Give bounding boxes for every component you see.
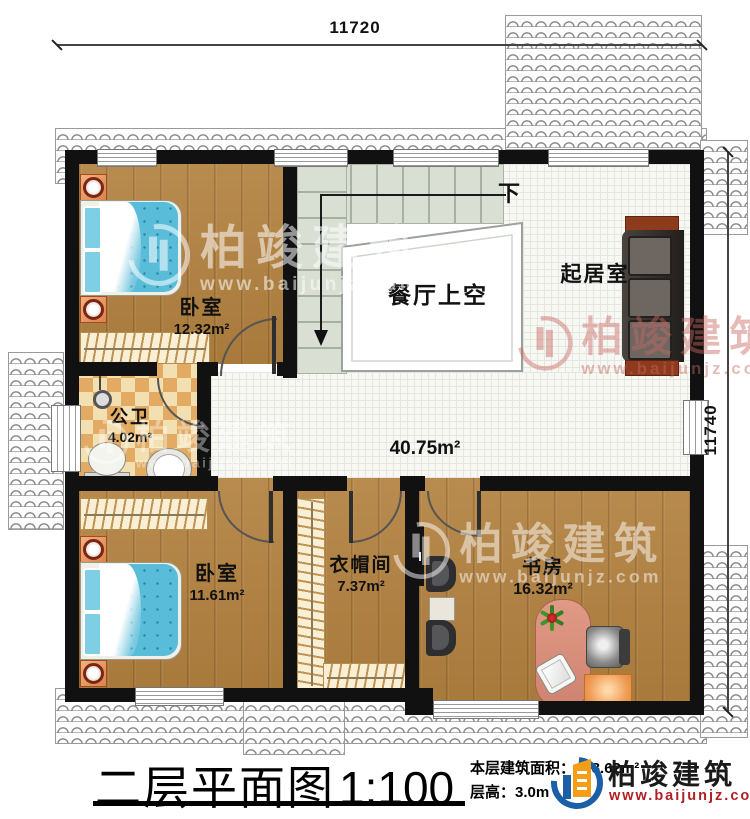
watermark-logo-bar [422, 536, 429, 565]
roof-right-upper [700, 140, 748, 235]
watermark-logo-icon [507, 305, 583, 381]
window [135, 687, 224, 706]
wall-segment [65, 470, 79, 702]
door-leaf [269, 491, 273, 543]
wall-segment [155, 150, 274, 164]
wall-segment [222, 688, 406, 702]
pillow [83, 250, 102, 294]
plant-flower [547, 613, 557, 623]
watermark: 柏竣建筑 www.baijunjz.com [518, 316, 750, 379]
room-area: 11.61m² [162, 587, 272, 606]
title-underline [93, 801, 465, 806]
dimension-line-right [727, 152, 729, 712]
plant-icon [539, 605, 565, 631]
dimension-line-top [57, 44, 702, 46]
watermark: 柏竣建筑 www.baijunjz.com [84, 420, 297, 472]
watermark-logo-bar [99, 429, 105, 448]
window [548, 149, 649, 167]
wardrobe-rod [84, 348, 206, 350]
bedroom-top-label: 卧室 12.32m² [144, 296, 259, 340]
wall-segment [65, 150, 79, 405]
side-table [429, 597, 455, 621]
wardrobe-rod [327, 677, 403, 679]
stair-down-label: 下 [498, 176, 520, 208]
watermark-url: www.baijunjz.com [581, 360, 750, 379]
wall-segment [690, 452, 704, 715]
armchair-seat [432, 625, 449, 650]
brand-name: 柏竣建筑 [608, 753, 736, 793]
bedroom-bottom-label: 卧室 11.61m² [162, 562, 272, 606]
watermark-name: 柏竣建筑 [459, 522, 665, 565]
logo-building [573, 759, 591, 797]
watermark-name: 柏竣建筑 [200, 224, 424, 271]
hall-label: 40.75m² [370, 437, 480, 461]
office-chair-back [619, 629, 630, 665]
door-leaf [349, 491, 353, 543]
pillow [83, 612, 102, 656]
wall-segment [480, 476, 704, 491]
lamp-icon [83, 539, 104, 560]
window [274, 149, 348, 167]
nightstand [80, 660, 107, 687]
cloakroom-wardrobe-bottom [323, 663, 407, 690]
logo-tower [563, 775, 571, 799]
nightstand [80, 536, 107, 563]
watermark-logo-bar [160, 240, 168, 271]
plan-title: 二层平面图1:100 [95, 752, 454, 818]
room-name: 卧室 [144, 296, 259, 321]
watermark-logo-icon [382, 511, 461, 590]
shower-stem [99, 376, 101, 390]
stair-direction-line-h [320, 194, 506, 196]
dimension-label-right: 11740 [701, 395, 721, 465]
watermark-logo-bar [149, 237, 157, 263]
floor-height-text: 层高：3.0m [470, 781, 549, 802]
bed-blanket [99, 564, 141, 656]
watermark-url: www.baijunjz.com [136, 456, 297, 472]
floor-plan: 下 [0, 0, 750, 819]
room-name: 起居室 [545, 262, 645, 288]
armchair [426, 620, 456, 656]
watermark: 柏竣建筑 www.baijunjz.com [128, 224, 424, 296]
watermark-url: www.baijunjz.com [459, 568, 665, 588]
nightstand [80, 174, 107, 201]
stair-arrow-head [314, 330, 328, 346]
lamp-icon [83, 299, 104, 320]
door-leaf [272, 316, 276, 374]
window [51, 405, 81, 472]
watermark-logo-bar [107, 431, 113, 453]
living-room-label: 起居室 [545, 262, 645, 288]
window [433, 700, 539, 719]
room-area: 12.32m² [144, 321, 259, 340]
pillow [83, 206, 102, 250]
window [97, 149, 157, 167]
watermark-name: 柏竣建筑 [136, 420, 297, 454]
window [393, 149, 499, 167]
wall-segment [537, 701, 704, 715]
watermark-url: www.baijunjz.com [200, 274, 424, 296]
lamp-icon [83, 663, 104, 684]
lamp-icon [83, 177, 104, 198]
desk-chair-seat [541, 659, 571, 689]
watermark: 柏竣建筑 www.baijunjz.com [393, 522, 665, 588]
watermark-logo-icon [116, 212, 202, 298]
wall-segment [346, 150, 393, 164]
watermark-logo-icon [75, 411, 137, 473]
wall-segment [65, 476, 218, 491]
dimension-label-top: 11720 [300, 18, 410, 38]
watermark-logo-bar [536, 327, 543, 350]
wall-segment [283, 476, 297, 702]
roof-top-right-block [505, 15, 702, 150]
wardrobe [80, 498, 208, 530]
room-area: 40.75m² [370, 437, 480, 461]
pillow [83, 568, 102, 612]
room-name: 卧室 [162, 562, 272, 587]
wardrobe-rod [84, 514, 204, 516]
brand-url: www.baijunjz.com [609, 788, 750, 804]
wall-segment [497, 150, 548, 164]
plan-title-text: 二层平面图 [95, 762, 335, 814]
watermark-logo-bar [412, 534, 419, 558]
watermark-name: 柏竣建筑 [581, 316, 750, 357]
nightstand [80, 296, 107, 323]
plan-title-scale: 1:100 [339, 762, 454, 814]
watermark-logo-bar [546, 330, 553, 357]
logo-building-windows [577, 771, 587, 795]
brand-logo-icon [549, 753, 603, 807]
